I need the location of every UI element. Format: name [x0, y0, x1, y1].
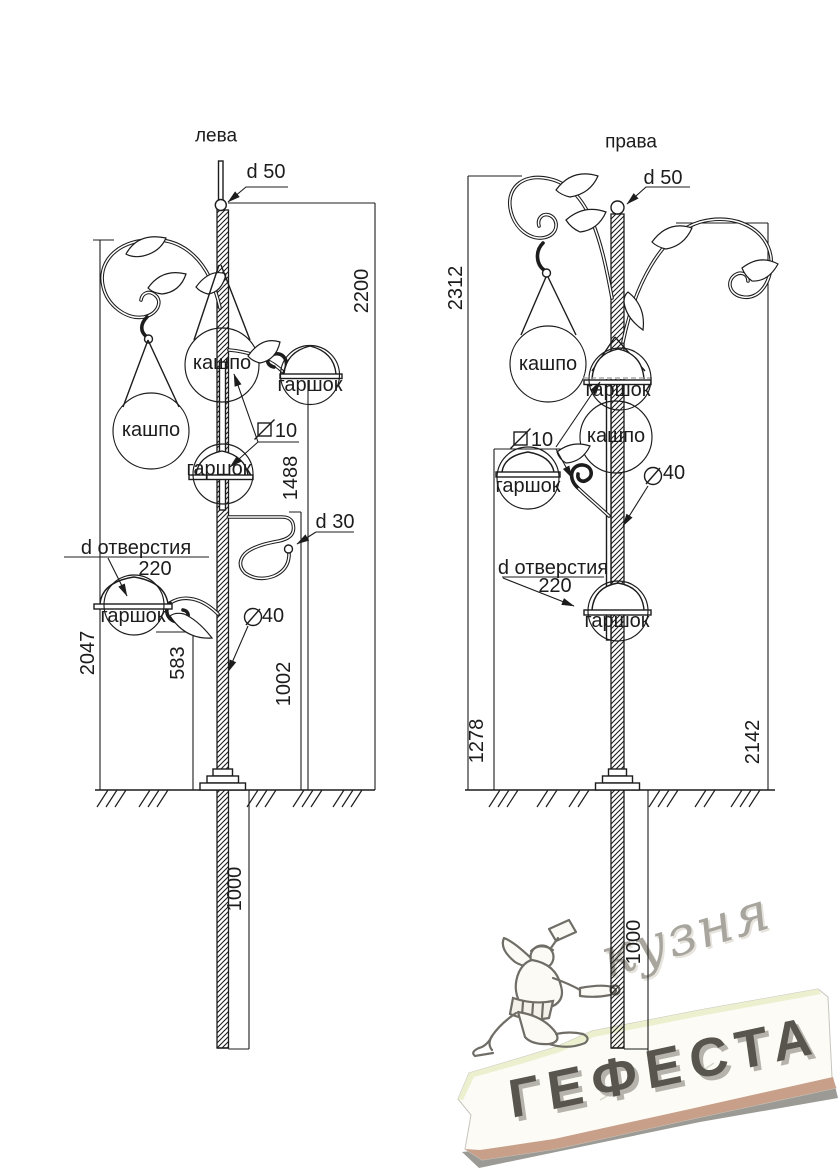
left-top-diameter-callout: d 50	[247, 162, 286, 182]
left-pot-middle-label: гаршок	[186, 459, 251, 479]
right-dim-pot-left-height: 1278	[467, 719, 487, 764]
left-hole-diameter-label: d отверстия	[81, 538, 191, 558]
right-pot-left-label: гаршок	[495, 476, 560, 496]
right-top-diameter-callout: d 50	[644, 168, 683, 188]
right-planter-center-label: кашпо	[587, 426, 645, 446]
right-pole-top-ball	[611, 201, 624, 214]
right-pot-bottom-label: гаршок	[584, 611, 649, 631]
right-dim-underground: 1000	[624, 920, 644, 965]
right-dim-right-scroll-height: 2142	[743, 720, 763, 765]
right-right-scroll-arm	[623, 219, 778, 342]
left-square-bar	[220, 362, 226, 510]
left-dim-pot-bottom-height: 583	[168, 646, 188, 679]
right-hanging-planter	[510, 277, 586, 402]
right-pole-diameter-callout: 40	[663, 463, 685, 483]
left-ground	[95, 769, 375, 807]
left-scroll-arm	[102, 237, 226, 343]
right-left-scroll-arm	[510, 174, 612, 298]
left-hook-diameter-callout: d 30	[316, 512, 355, 532]
left-pot-right-label: гаршок	[277, 375, 342, 395]
diameter-symbol	[645, 468, 662, 485]
square-section-symbol	[255, 420, 275, 440]
left-hook	[229, 517, 294, 578]
drawing-sheet: кузня кузня ГЕФЕСТА ГЕФЕСТА	[0, 0, 839, 1170]
left-view-title: лева	[195, 127, 237, 146]
diameter-symbol	[245, 609, 262, 626]
right-base-flange	[596, 769, 640, 790]
left-pole-top-ball	[215, 200, 226, 211]
left-hole-diameter-value: 220	[138, 559, 171, 579]
left-planter-top-label: кашпо	[193, 353, 251, 373]
left-pole-diameter-callout: 40	[262, 606, 284, 626]
right-hole-diameter-value: 220	[538, 576, 571, 596]
left-hanging-planter	[113, 340, 189, 469]
left-dim-underground: 1000	[225, 867, 245, 912]
left-square-bar-callout: 10	[275, 421, 297, 441]
left-dim-pot-right-height: 1488	[281, 456, 301, 501]
left-pot-bottom-label: гаршок	[100, 606, 165, 626]
right-square-bar-callout: 10	[531, 430, 553, 450]
left-dim-scroll-height: 2047	[78, 631, 98, 676]
left-planter-left-label: кашпо	[122, 420, 180, 440]
left-base-flange	[200, 769, 246, 790]
right-pot-top-label: гаршок	[585, 380, 650, 400]
technical-drawing-canvas: кузня кузня ГЕФЕСТА ГЕФЕСТА	[0, 0, 839, 1170]
right-dim-total-height: 2312	[446, 266, 466, 311]
left-dim-total-height: 2200	[352, 269, 372, 314]
left-dim-hook-height: 1002	[274, 662, 294, 707]
right-view-title: права	[605, 133, 657, 152]
right-planter-left-label: кашпо	[519, 354, 577, 374]
square-section-symbol	[511, 429, 531, 449]
